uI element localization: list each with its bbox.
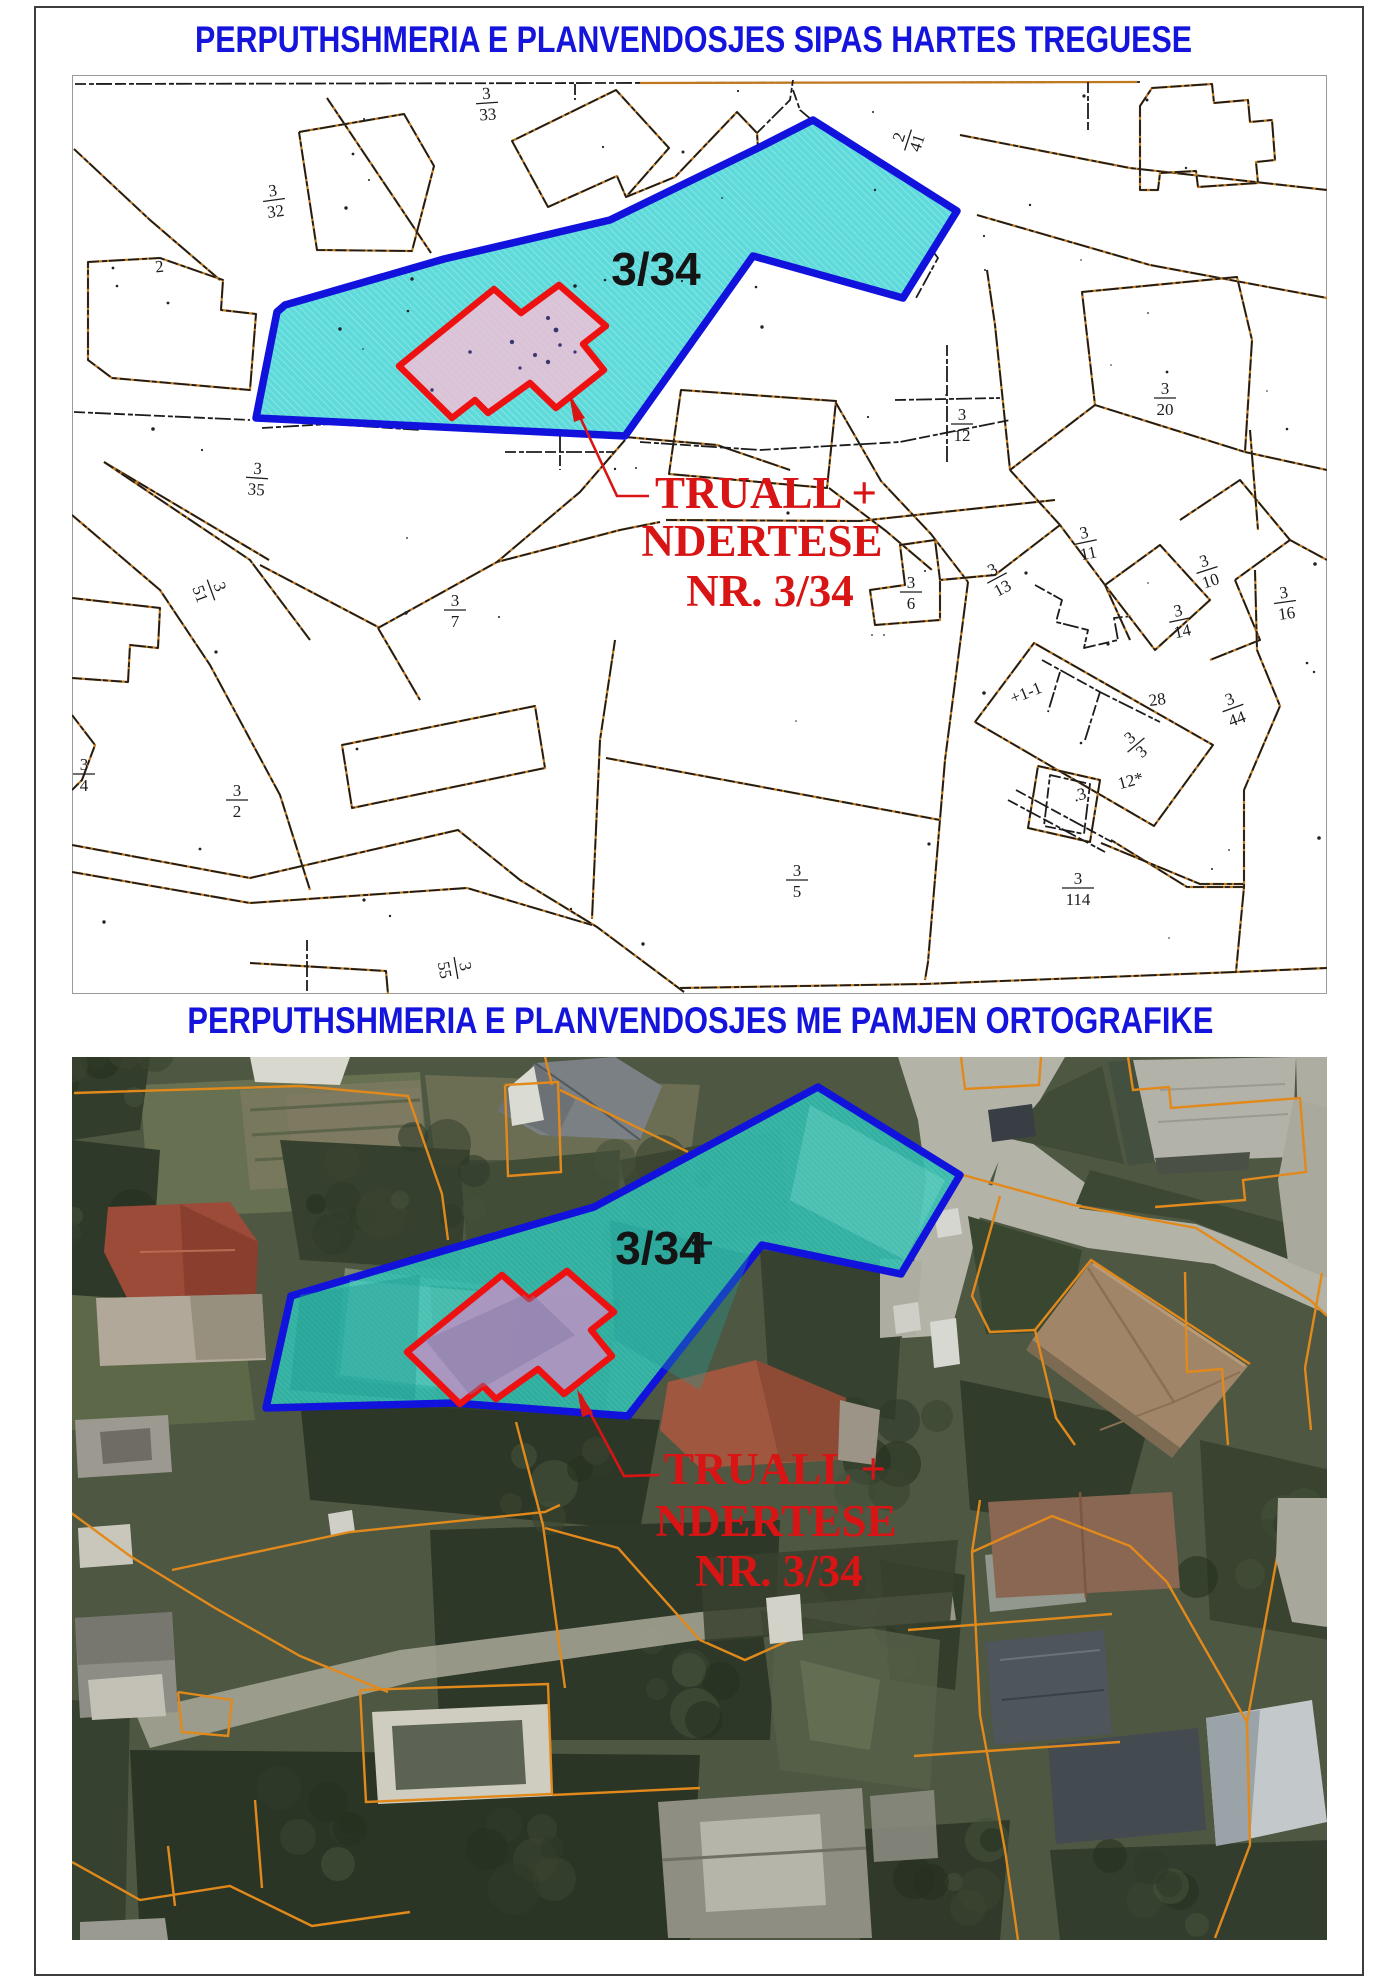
svg-text:3: 3 [1074, 869, 1083, 888]
svg-text:3: 3 [80, 755, 89, 774]
svg-text:28: 28 [1147, 689, 1166, 710]
svg-text:2: 2 [233, 802, 242, 821]
svg-text:114: 114 [1066, 890, 1091, 909]
svg-text:TRUALL +: TRUALL + [664, 1444, 886, 1494]
svg-text:33: 33 [479, 104, 497, 124]
svg-text:3: 3 [958, 405, 967, 424]
svg-text:32: 32 [266, 201, 285, 222]
svg-text:5: 5 [793, 882, 802, 901]
svg-text:NR. 3/34: NR. 3/34 [686, 566, 854, 616]
svg-text:NR. 3/34: NR. 3/34 [695, 1546, 863, 1596]
svg-text:3: 3 [481, 84, 491, 104]
svg-text:3: 3 [451, 591, 460, 610]
svg-text:3: 3 [907, 573, 916, 592]
svg-text:3/34: 3/34 [611, 243, 701, 295]
svg-text:TRUALL +: TRUALL + [655, 468, 877, 518]
svg-text:20: 20 [1157, 400, 1174, 419]
svg-text:4: 4 [80, 776, 89, 795]
svg-text:35: 35 [247, 479, 265, 499]
svg-text:NDERTESE: NDERTESE [656, 1496, 897, 1546]
svg-text:55: 55 [434, 960, 456, 980]
svg-text:NDERTESE: NDERTESE [642, 516, 883, 566]
svg-text:3/34: 3/34 [615, 1222, 705, 1274]
svg-text:3: 3 [233, 781, 242, 800]
svg-text:12: 12 [954, 426, 971, 445]
svg-text:6: 6 [907, 594, 916, 613]
svg-text:16: 16 [1277, 603, 1296, 624]
svg-text:7: 7 [451, 612, 460, 631]
svg-text:3: 3 [253, 459, 263, 479]
svg-text:3: 3 [1161, 379, 1170, 398]
svg-text:3: 3 [793, 861, 802, 880]
